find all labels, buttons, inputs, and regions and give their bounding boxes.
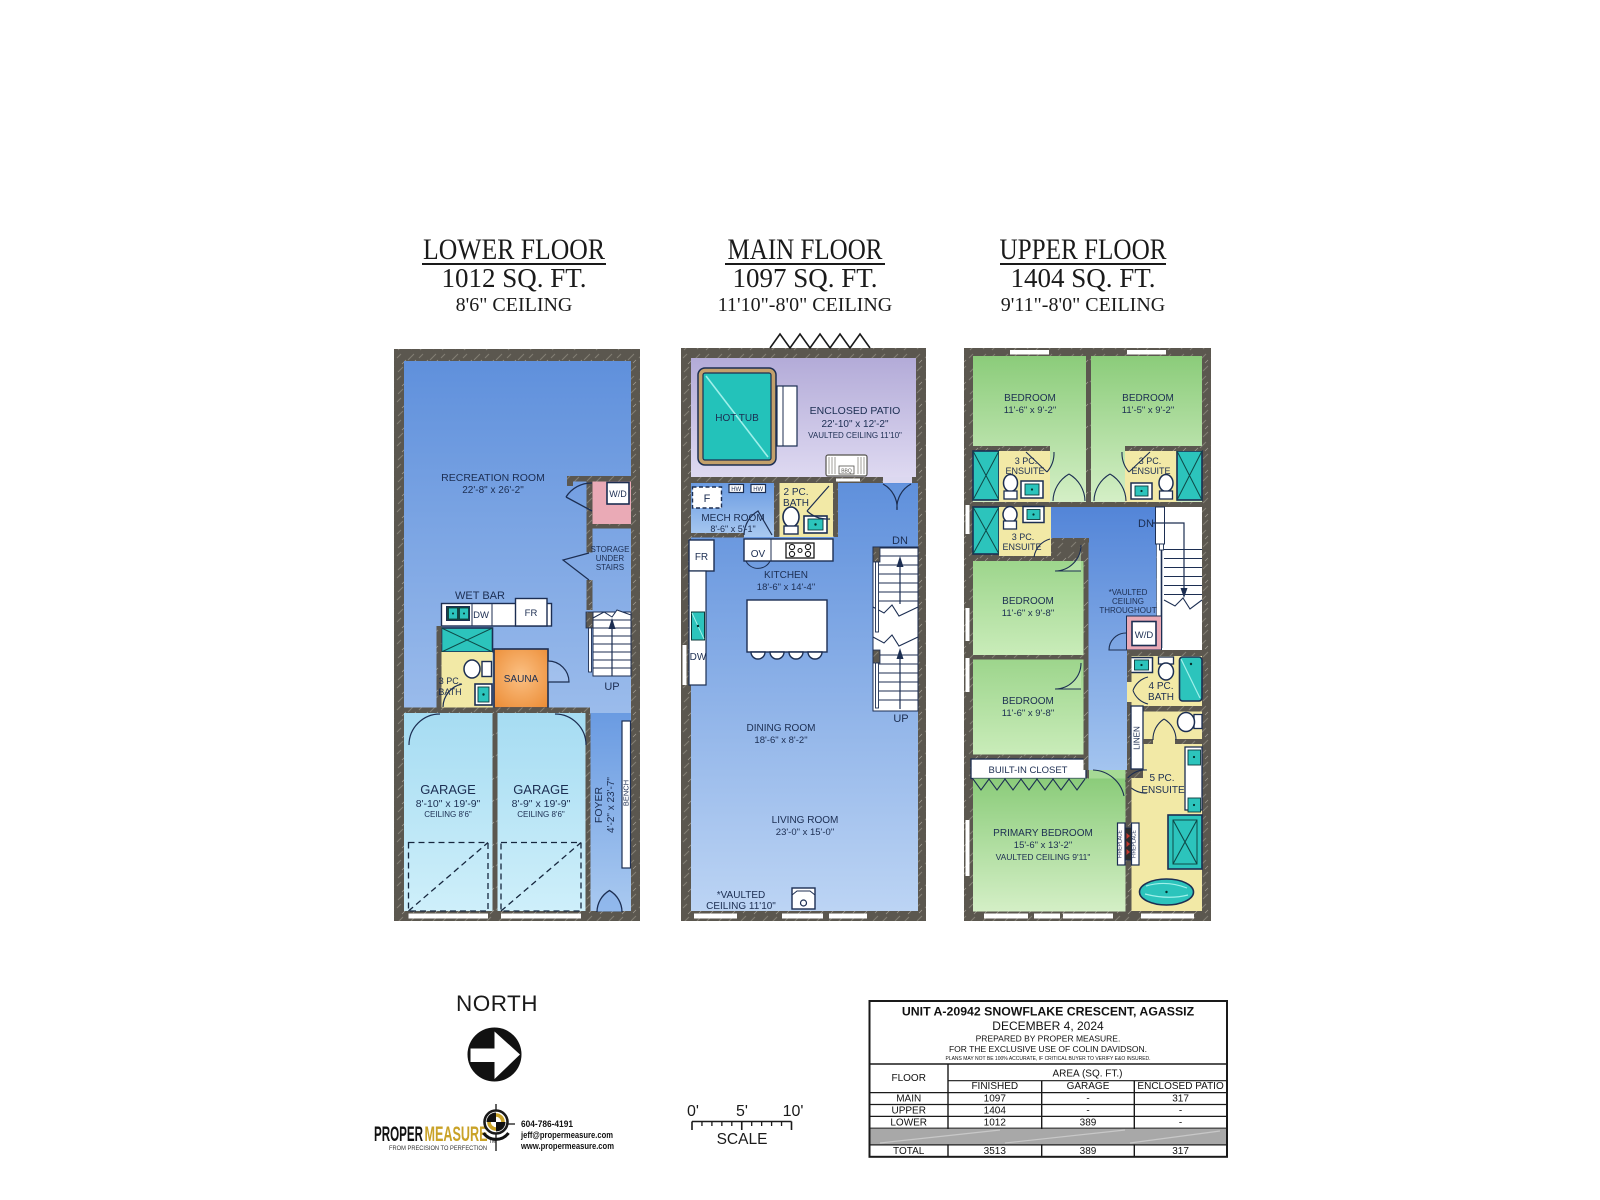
svg-text:OV: OV [751, 549, 766, 560]
svg-text:UNIT A-20942 SNOWFLAKE CRESCEN: UNIT A-20942 SNOWFLAKE CRESCENT, AGASSIZ [902, 1005, 1195, 1019]
svg-text:FOYER: FOYER [593, 786, 605, 823]
svg-text:CEILING: CEILING [1112, 597, 1144, 606]
svg-text:UPPER FLOOR: UPPER FLOOR [1000, 233, 1167, 266]
svg-text:1097: 1097 [984, 1094, 1007, 1105]
svg-text:F: F [704, 493, 711, 505]
svg-text:FIREPLACE: FIREPLACE [1132, 829, 1138, 857]
svg-text:DW: DW [690, 652, 707, 663]
svg-text:15'-6" x 13'-2": 15'-6" x 13'-2" [1014, 840, 1072, 851]
svg-text:389: 389 [1080, 1117, 1097, 1128]
svg-text:-: - [1179, 1117, 1182, 1128]
svg-text:THROUGHOUT: THROUGHOUT [1099, 606, 1156, 615]
svg-text:PRIMARY BEDROOM: PRIMARY BEDROOM [993, 828, 1093, 839]
svg-text:11'10"-8'0" CEILING: 11'10"-8'0" CEILING [718, 294, 892, 316]
svg-text:DW: DW [473, 610, 489, 621]
svg-text:3 PC.: 3 PC. [439, 676, 462, 686]
svg-text:DINING ROOM: DINING ROOM [747, 723, 816, 734]
svg-text:VAULTED CEILING 9'11": VAULTED CEILING 9'11" [996, 852, 1091, 862]
svg-text:1012 SQ. FT.: 1012 SQ. FT. [441, 263, 586, 293]
svg-text:FROM PRECISION TO PERFECTION: FROM PRECISION TO PERFECTION [389, 1145, 487, 1152]
svg-text:ENCLOSED PATIO: ENCLOSED PATIO [810, 405, 901, 417]
svg-text:SAUNA: SAUNA [504, 674, 539, 685]
svg-text:3 PC.: 3 PC. [1139, 456, 1162, 466]
svg-text:MECH ROOM: MECH ROOM [701, 513, 764, 524]
svg-text:W/D: W/D [609, 489, 627, 499]
svg-text:ENSUITE: ENSUITE [1141, 785, 1185, 796]
svg-text:FR: FR [695, 552, 708, 563]
svg-text:UP: UP [604, 681, 619, 693]
svg-text:UP: UP [893, 713, 908, 725]
svg-text:317: 317 [1172, 1146, 1189, 1157]
svg-text:WET BAR: WET BAR [455, 590, 505, 602]
svg-text:FINISHED: FINISHED [971, 1081, 1018, 1092]
svg-text:FLOOR: FLOOR [891, 1073, 925, 1084]
svg-text:18'-6" x 14'-4": 18'-6" x 14'-4" [757, 582, 815, 593]
svg-text:5': 5' [736, 1103, 748, 1120]
svg-text:GARAGE: GARAGE [420, 782, 476, 797]
svg-text:LOWER: LOWER [890, 1117, 927, 1128]
svg-text:AREA (SQ. FT.): AREA (SQ. FT.) [1052, 1069, 1122, 1080]
svg-text:1097 SQ. FT.: 1097 SQ. FT. [732, 263, 877, 293]
svg-text:317: 317 [1172, 1094, 1189, 1105]
svg-text:PROPER: PROPER [374, 1123, 423, 1146]
svg-text:10': 10' [783, 1103, 804, 1120]
svg-text:RECREATION ROOM: RECREATION ROOM [441, 472, 545, 484]
svg-text:11'-6" x 9'-2": 11'-6" x 9'-2" [1004, 405, 1056, 416]
svg-text:GARAGE: GARAGE [1067, 1081, 1110, 1092]
svg-text:11'-6" x 9'-8": 11'-6" x 9'-8" [1002, 708, 1054, 719]
svg-text:22'-8" x 26'-2": 22'-8" x 26'-2" [462, 485, 524, 496]
svg-text:604-786-4191: 604-786-4191 [521, 1119, 574, 1130]
svg-text:PREPARED BY PROPER MEASURE.: PREPARED BY PROPER MEASURE. [976, 1034, 1121, 1044]
svg-text:0': 0' [687, 1103, 699, 1120]
svg-text:BEDROOM: BEDROOM [1002, 696, 1054, 707]
svg-text:1012: 1012 [984, 1117, 1007, 1128]
svg-text:9'11"-8'0" CEILING: 9'11"-8'0" CEILING [1001, 294, 1165, 316]
svg-text:23'-0" x 15'-0": 23'-0" x 15'-0" [776, 827, 834, 838]
svg-text:3513: 3513 [984, 1146, 1007, 1157]
svg-text:-: - [1179, 1105, 1182, 1116]
svg-text:11'-6" x 9'-8": 11'-6" x 9'-8" [1002, 608, 1054, 619]
svg-text:DN: DN [1138, 518, 1154, 530]
svg-text:BUILT-IN CLOSET: BUILT-IN CLOSET [988, 765, 1067, 776]
svg-text:BENCH: BENCH [622, 780, 631, 806]
svg-text:CEILING 11'10": CEILING 11'10" [706, 901, 776, 912]
svg-text:*VAULTED: *VAULTED [717, 890, 766, 901]
svg-text:CEILING 8'6": CEILING 8'6" [424, 810, 472, 819]
svg-text:HW: HW [731, 487, 741, 493]
svg-text:LIVING ROOM: LIVING ROOM [772, 815, 839, 826]
svg-text:LOWER FLOOR: LOWER FLOOR [423, 233, 605, 266]
svg-text:5 PC.: 5 PC. [1149, 773, 1174, 784]
svg-text:389: 389 [1080, 1146, 1097, 1157]
svg-text:BEDROOM: BEDROOM [1004, 393, 1056, 404]
svg-text:FOR THE EXCLUSIVE USE OF COLIN: FOR THE EXCLUSIVE USE OF COLIN DAVIDSON. [949, 1044, 1147, 1054]
svg-text:TOTAL: TOTAL [893, 1146, 925, 1157]
svg-text:-: - [1086, 1094, 1089, 1105]
svg-text:3 PC.: 3 PC. [1015, 456, 1038, 466]
svg-text:BBQ: BBQ [841, 469, 852, 475]
svg-text:SCALE: SCALE [717, 1131, 768, 1148]
svg-text:4 PC.: 4 PC. [1148, 681, 1173, 692]
svg-text:18'-6" x 8'-2": 18'-6" x 8'-2" [754, 735, 807, 746]
svg-text:STORAGE: STORAGE [591, 545, 630, 554]
svg-text:FIREPLACE: FIREPLACE [1118, 829, 1124, 857]
svg-text:UPPER: UPPER [891, 1105, 925, 1116]
svg-text:MEASURE: MEASURE [425, 1123, 488, 1146]
svg-text:GARAGE: GARAGE [513, 782, 569, 797]
svg-text:BATH: BATH [783, 498, 809, 509]
svg-text:STAIRS: STAIRS [596, 563, 624, 572]
svg-text:W/D: W/D [1135, 630, 1154, 641]
svg-text:3 PC.: 3 PC. [1012, 532, 1035, 542]
svg-text:8'-9" x 19'-9": 8'-9" x 19'-9" [512, 798, 571, 810]
svg-text:8'6" CEILING: 8'6" CEILING [456, 294, 573, 316]
svg-text:11'-5" x 9'-2": 11'-5" x 9'-2" [1122, 405, 1174, 416]
svg-text:-: - [1086, 1105, 1089, 1116]
svg-text:DECEMBER 4, 2024: DECEMBER 4, 2024 [992, 1019, 1104, 1033]
svg-text:KITCHEN: KITCHEN [764, 570, 808, 581]
svg-text:22'-10" x 12'-2": 22'-10" x 12'-2" [821, 419, 889, 430]
svg-text:*VAULTED: *VAULTED [1109, 588, 1148, 597]
svg-text:BATH: BATH [1148, 692, 1174, 703]
svg-text:jeff@propermeasure.com: jeff@propermeasure.com [520, 1130, 613, 1141]
svg-text:2 PC.: 2 PC. [783, 487, 808, 498]
svg-text:HW: HW [753, 487, 763, 493]
svg-text:VAULTED CEILING 11'10": VAULTED CEILING 11'10" [808, 431, 902, 440]
svg-text:DN: DN [892, 535, 908, 547]
svg-text:NORTH: NORTH [456, 991, 538, 1016]
svg-text:ENCLOSED PATIO: ENCLOSED PATIO [1137, 1081, 1224, 1092]
svg-text:UNDER: UNDER [596, 554, 625, 563]
svg-text:BEDROOM: BEDROOM [1002, 596, 1054, 607]
svg-text:BATH: BATH [438, 687, 461, 697]
svg-text:4'-2" x 23'-7": 4'-2" x 23'-7" [606, 777, 617, 833]
svg-text:MAIN FLOOR: MAIN FLOOR [728, 233, 883, 266]
svg-text:www.propermeasure.com: www.propermeasure.com [520, 1141, 614, 1152]
svg-text:PLANS MAY NOT BE 100% ACCURATE: PLANS MAY NOT BE 100% ACCURATE, IF CRITI… [945, 1056, 1150, 1062]
svg-text:LINEN: LINEN [1133, 726, 1142, 750]
svg-text:HOT TUB: HOT TUB [715, 413, 759, 424]
svg-text:FR: FR [525, 608, 538, 619]
svg-text:1404: 1404 [984, 1105, 1007, 1116]
svg-text:CEILING 8'6": CEILING 8'6" [517, 810, 565, 819]
svg-text:1404 SQ. FT.: 1404 SQ. FT. [1010, 263, 1155, 293]
svg-text:8'-6" x 5'-1": 8'-6" x 5'-1" [710, 524, 755, 534]
svg-text:MAIN: MAIN [896, 1094, 921, 1105]
svg-text:BEDROOM: BEDROOM [1122, 393, 1174, 404]
svg-text:8'-10" x 19'-9": 8'-10" x 19'-9" [416, 798, 481, 810]
